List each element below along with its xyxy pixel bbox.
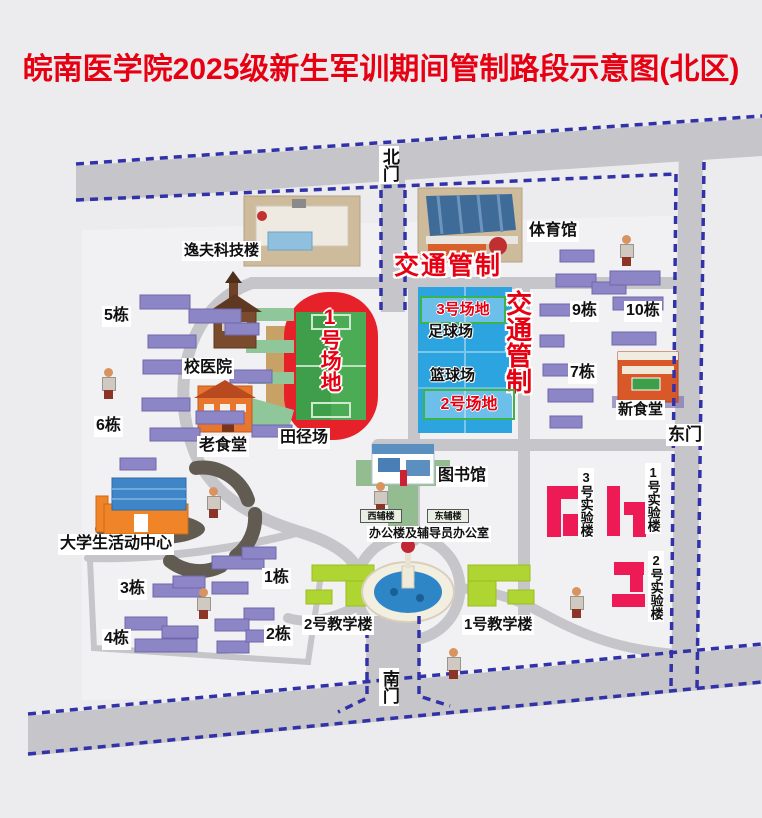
track-field-label: 田径场 <box>278 428 330 449</box>
east-annex-label: 东辅楼 <box>427 509 469 523</box>
west-annex-label: 西辅楼 <box>360 509 402 523</box>
library-label: 图书馆 <box>436 466 488 487</box>
dorm1-label: 1栋 <box>262 568 291 589</box>
person-figure <box>195 588 211 619</box>
lab2-label: 2号实验楼 <box>648 551 664 622</box>
field1-label: 1号场地 <box>318 306 341 392</box>
activity-center-label: 大学生活动中心 <box>58 534 174 555</box>
lab1-label: 1号实验楼 <box>645 463 661 534</box>
page-title: 皖南医学院2025级新生军训期间管制路段示意图(北区) <box>0 44 762 88</box>
dorm6-label: 6栋 <box>94 416 123 437</box>
new-canteen-label: 新食堂 <box>616 400 665 420</box>
north-gate-label: 北门 <box>379 146 399 184</box>
person-figure <box>445 648 461 679</box>
basketball-court-label: 篮球场 <box>430 364 475 385</box>
dorm3-label: 3栋 <box>118 579 147 600</box>
dorm9-label: 9栋 <box>570 301 599 322</box>
old-canteen-label: 老食堂 <box>197 436 249 457</box>
dorm4-label: 4栋 <box>102 629 131 650</box>
east-gate-label: 东门 <box>666 424 704 446</box>
football-field-label: 足球场 <box>428 320 473 341</box>
teaching-building1-label: 1号教学楼 <box>462 615 534 635</box>
dorm2-label: 2栋 <box>264 625 293 646</box>
dorm10-label: 10栋 <box>624 301 662 322</box>
office-building-label: 办公楼及辅导员办公室 <box>367 526 491 542</box>
person-figure <box>618 235 634 266</box>
person-figure <box>568 587 584 618</box>
lab3-label: 3号实验楼 <box>578 468 594 539</box>
person-figure <box>205 487 221 518</box>
person-figure <box>100 368 116 399</box>
gymnasium-label: 体育馆 <box>527 221 579 242</box>
dorm7-label: 7栋 <box>568 363 597 384</box>
teaching-building2-label: 2号教学楼 <box>302 615 374 635</box>
traffic-control-side-label: 交通管制 <box>503 290 532 394</box>
field2-zone-box: 2号场地 <box>423 389 515 420</box>
south-gate-label: 南门 <box>379 668 399 706</box>
traffic-control-top-label: 交通管制 <box>394 246 502 282</box>
dorm5-label: 5栋 <box>102 306 131 327</box>
yifu-building-label: 逸夫科技楼 <box>182 241 261 261</box>
campus-map: 皖南医学院 <box>0 0 762 818</box>
yifu-building <box>244 196 360 266</box>
hospital-label: 校医院 <box>182 358 234 379</box>
